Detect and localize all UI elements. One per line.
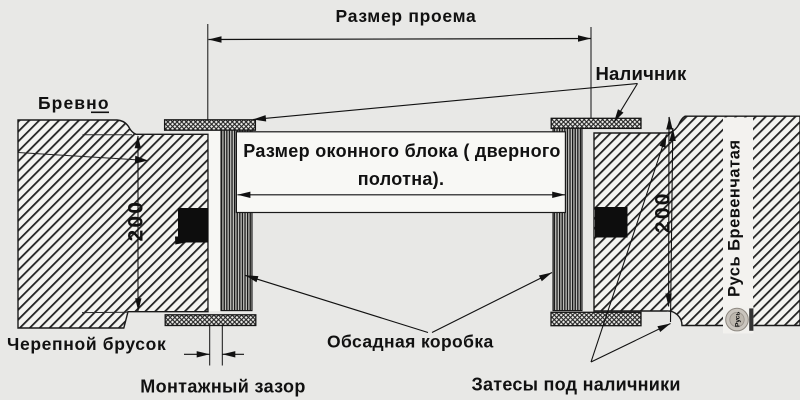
svg-text:Наличник: Наличник xyxy=(596,63,687,84)
svg-text:Бревно: Бревно xyxy=(38,93,110,113)
svg-text:200: 200 xyxy=(652,191,675,233)
svg-text:200: 200 xyxy=(125,200,148,242)
svg-text:Черепной брусок: Черепной брусок xyxy=(7,334,166,354)
svg-text:Монтажный зазор: Монтажный зазор xyxy=(140,377,305,397)
svg-text:Размер оконного блока ( дверно: Размер оконного блока ( дверного xyxy=(243,141,560,161)
svg-text:полотна).: полотна). xyxy=(358,169,445,189)
svg-text:Русь: Русь xyxy=(735,312,742,327)
svg-text:Затесы под наличники: Затесы под наличники xyxy=(472,375,681,395)
svg-text:Обсадная коробка: Обсадная коробка xyxy=(327,332,494,352)
svg-text:Размер проема: Размер проема xyxy=(336,6,477,26)
svg-text:Русь Бревенчатая: Русь Бревенчатая xyxy=(726,140,744,298)
